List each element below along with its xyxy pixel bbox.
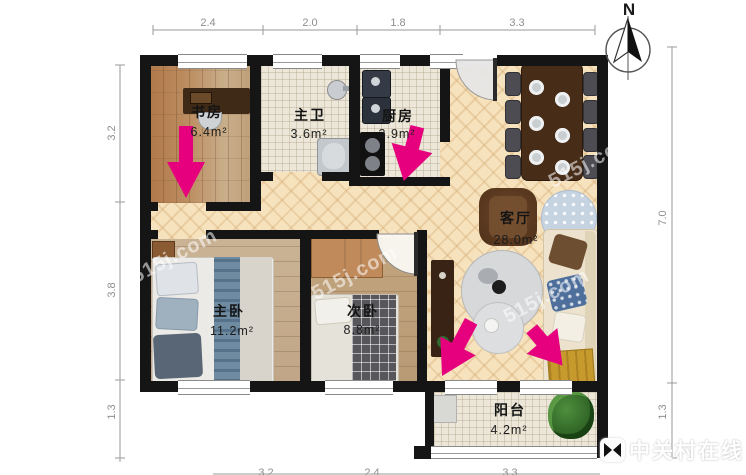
wall-second-right: [417, 230, 427, 382]
dining-chair: [505, 72, 521, 96]
brand-watermark-text: 中关村在线: [629, 435, 744, 465]
room-name-bath: 主卫: [294, 105, 326, 125]
master-pillow-2: [155, 297, 199, 331]
compass-icon: [606, 16, 650, 80]
room-area-bath: 3.6m²: [291, 127, 328, 141]
dim-top-1: 2.4: [200, 17, 215, 29]
zol-logo-icon: [600, 438, 625, 462]
wall-study-bottom-b: [206, 202, 261, 211]
dim-left-2: 3.8: [106, 282, 118, 297]
window-balcony-top-a: [445, 380, 497, 395]
dim-bottom-2: 2.4: [364, 467, 379, 475]
room-area-study: 6.4m²: [191, 125, 228, 139]
room-name-living: 客厅: [500, 208, 532, 228]
second-wardrobe: [311, 238, 383, 278]
window-kitchen-top: [360, 54, 400, 69]
window-master-bottom: [178, 380, 250, 395]
wall-balcony-left: [425, 381, 434, 451]
dim-bottom-1: 3.2: [258, 467, 273, 475]
dining-chair: [505, 155, 521, 179]
brand-watermark: 中关村在线: [600, 435, 744, 465]
dining-chair: [505, 100, 521, 124]
room-name-kitchen: 厨房: [382, 106, 414, 126]
wall-outer-right: [597, 55, 608, 458]
room-area-balcony: 4.2m²: [491, 423, 528, 437]
window-study-top: [178, 54, 247, 69]
dim-right-1: 7.0: [657, 210, 669, 225]
window-second-bottom: [325, 380, 393, 395]
room-name-master: 主卧: [213, 301, 245, 321]
dining-plate: [555, 160, 570, 175]
dining-plate: [555, 92, 570, 107]
dim-bottom-3: 3.3: [502, 467, 517, 475]
dining-plate: [555, 128, 570, 143]
wall-balcony-corner: [414, 446, 431, 459]
wall-bath-right: [349, 55, 360, 186]
master-pillow-1: [155, 262, 199, 297]
dining-plate: [529, 116, 544, 131]
wall-outer-left: [140, 55, 151, 392]
tv-cabinet-plant: [437, 336, 449, 348]
wall-study-bottom-a: [150, 202, 158, 211]
dim-right-2: 1.3: [657, 404, 669, 419]
dim-top-2: 2.0: [302, 17, 317, 29]
wall-bath-bottom-a: [261, 172, 273, 181]
window-entry-left: [430, 54, 463, 69]
wall-bedrooms-top-b: [206, 230, 379, 239]
room-name-second: 次卧: [347, 301, 379, 321]
dining-chair: [505, 128, 521, 152]
compass-north-label: N: [623, 0, 635, 20]
window-balcony-bottom: [431, 446, 597, 459]
sofa-pillow-white: [551, 311, 587, 344]
entry-door-opening: [463, 55, 497, 66]
floorplan-canvas: 书房 6.4m² 主卫 3.6m² 厨房 3.9m² 客厅 28.0m² 主卧 …: [0, 0, 746, 475]
room-name-balcony: 阳台: [494, 400, 526, 420]
kitchen-fridge-dot2: [371, 104, 380, 113]
wall-study-right: [250, 55, 261, 211]
kitchen-burner-2: [365, 156, 380, 171]
room-area-second: 8.8m²: [344, 323, 381, 337]
window-bath-top: [273, 54, 322, 69]
dim-top-4: 3.3: [509, 17, 524, 29]
dim-left-1: 3.2: [106, 125, 118, 140]
kitchen-fridge-dot: [371, 77, 380, 86]
room-name-study: 书房: [191, 102, 223, 122]
room-area-kitchen: 3.9m²: [379, 127, 416, 141]
tv-cabinet-decor: [439, 272, 446, 279]
dim-left-3: 1.3: [106, 404, 118, 419]
room-area-master: 11.2m²: [210, 324, 254, 338]
balcony-plant: [548, 391, 594, 439]
coffee-table-tray: [478, 268, 498, 284]
room-area-living: 28.0m²: [494, 233, 539, 247]
window-balcony-top-b: [520, 380, 572, 395]
dining-plate: [529, 150, 544, 165]
wall-bath-bottom-b: [322, 172, 349, 181]
bath-tub-inner: [322, 143, 345, 169]
wall-kitchen-bottom: [349, 177, 450, 186]
dining-plate: [529, 80, 544, 95]
coffee-table-plate: [484, 318, 499, 333]
wall-bedrooms-top-a: [150, 230, 158, 239]
master-throw-navy: [153, 333, 203, 379]
wall-bedroom-divider: [300, 230, 311, 382]
dim-top-3: 1.8: [390, 17, 405, 29]
